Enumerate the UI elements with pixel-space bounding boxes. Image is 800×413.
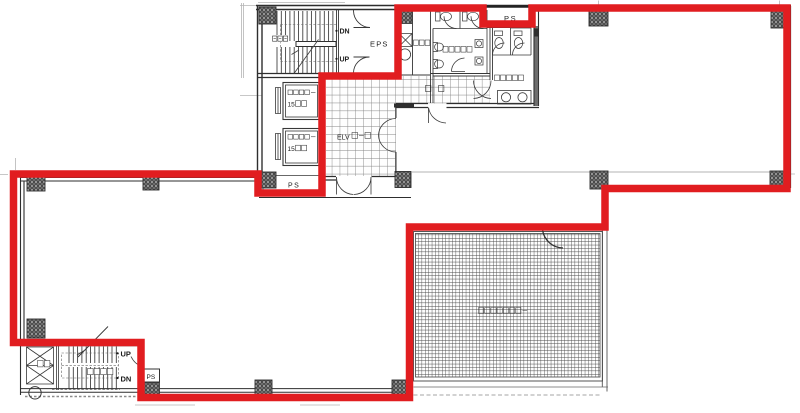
svg-text:PS: PS (147, 374, 156, 381)
svg-text:15: 15 (288, 146, 296, 153)
svg-text:PS: PS (288, 183, 300, 190)
svg-text:UP: UP (121, 350, 131, 359)
svg-text:DN: DN (121, 374, 132, 383)
svg-text:DN: DN (340, 29, 350, 36)
svg-text:ELV: ELV (337, 135, 350, 142)
svg-text:15: 15 (288, 102, 296, 109)
svg-text:UP: UP (340, 57, 350, 64)
svg-text:EPS: EPS (370, 40, 389, 49)
